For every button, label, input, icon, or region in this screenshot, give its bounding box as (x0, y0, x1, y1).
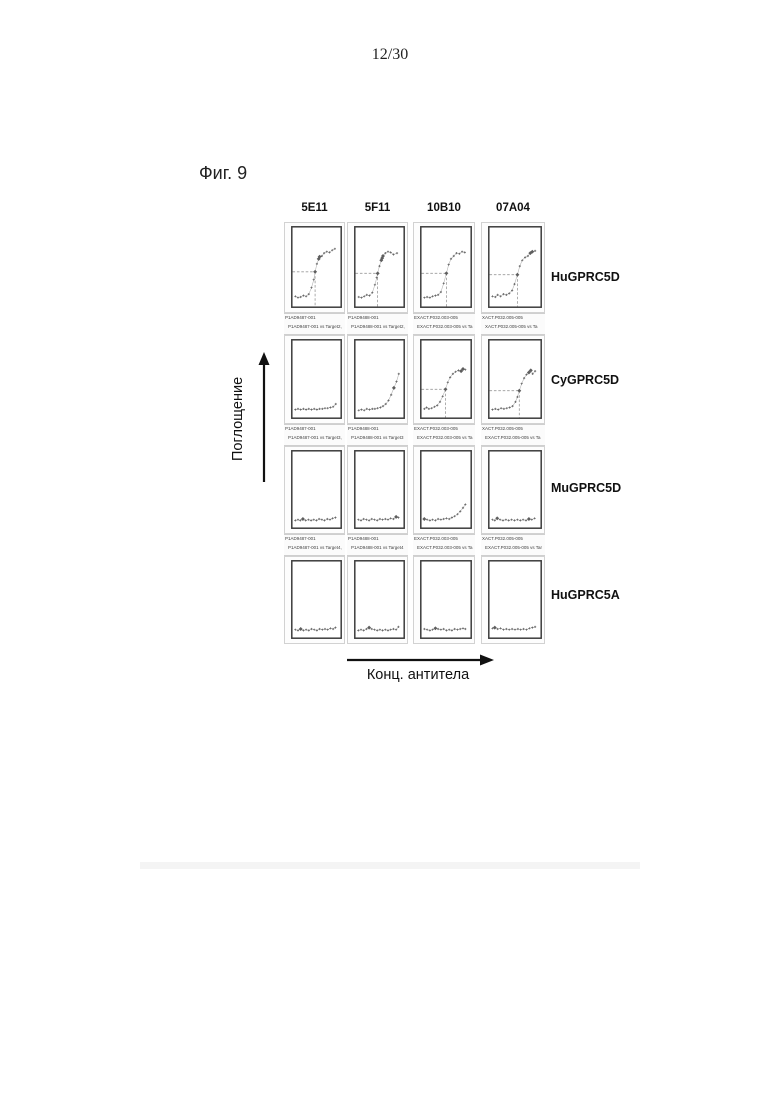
plot-caption-07A04-CyGPRC5D: XACT.P032.005-005EXACT.P032.005-005 vs T… (481, 424, 545, 446)
plot-cell-5E11-HuGPRC5A (284, 556, 345, 644)
y-axis-arrow (254, 350, 274, 490)
plot-caption-07A04-MuGPRC5D: XACT.P032.005-005EXACT.P032.005-005 vs T… (481, 534, 545, 556)
plot-caption-5F11-HuGPRC5D: P1AD9488-001P1AD9488-001 vs Target2, (347, 313, 408, 335)
plot-caption-5F11-MuGPRC5D: P1AD9488-001P1AD9488-001 vs Target4 (347, 534, 408, 556)
binding-curve-plot (420, 339, 472, 419)
caption-line-2: EXACT.P032.005-005 vs Ta (485, 435, 519, 440)
plot-caption-5E11-MuGPRC5D: P1AD9487-001P1AD9487-001 vs Target4, (284, 534, 345, 556)
caption-line-1: EXACT.P032.003-005 (414, 426, 448, 431)
binding-curve-plot (354, 450, 405, 529)
plot-grid: P1AD9487-001P1AD9487-001 vs Target2,P1AD… (0, 0, 780, 1103)
caption-line-1: P1AD9488-001 (348, 426, 382, 431)
plot-cell-5E11-MuGPRC5D (284, 446, 345, 534)
plot-caption-5E11-CyGPRC5D: P1AD9487-001P1AD9487-001 vs Target3, (284, 424, 345, 446)
caption-line-1: XACT.P032.005-005 (482, 426, 517, 431)
x-axis-label: Конц. антитела (342, 667, 494, 683)
caption-line-2: P1AD9487-001 vs Target4, (288, 545, 320, 550)
binding-curve-plot (488, 226, 542, 308)
caption-line-2: XACT.P032.005-005 vs Ta (485, 324, 519, 329)
plot-cell-07A04-HuGPRC5D (481, 222, 545, 313)
binding-curve-plot (291, 560, 342, 639)
binding-curve-plot (488, 450, 542, 529)
binding-curve-plot (420, 226, 472, 308)
caption-line-2: P1AD9488-001 vs Target4 (351, 545, 383, 550)
binding-curve-plot (354, 339, 405, 419)
plot-cell-07A04-MuGPRC5D (481, 446, 545, 534)
row-label-cygprc5d: CyGPRC5D (551, 373, 619, 387)
plot-caption-10B10-CyGPRC5D: EXACT.P032.003-005EXACT.P032.003-005 vs … (413, 424, 475, 446)
caption-line-2: P1AD9488-001 vs Target2, (351, 324, 383, 329)
caption-line-1: EXACT.P032.003-005 (414, 536, 448, 541)
caption-line-2: EXACT.P032.005-005 vs Tar (485, 545, 519, 550)
plot-cell-10B10-HuGPRC5A (413, 556, 475, 644)
caption-line-2: EXACT.P032.003-005 vs Ta (417, 435, 449, 440)
caption-line-1: P1AD9487-001 (285, 536, 319, 541)
binding-curve-plot (354, 226, 405, 308)
patent-figure-page: 12/30 Фиг. 9 5E11 5F11 10B10 07A04 P1AD9… (0, 0, 780, 1103)
plot-cell-07A04-CyGPRC5D (481, 335, 545, 424)
binding-curve-plot (420, 450, 472, 529)
plot-caption-10B10-HuGPRC5D: EXACT.P032.003-005EXACT.P032.003-005 vs … (413, 313, 475, 335)
plot-cell-07A04-HuGPRC5A (481, 556, 545, 644)
caption-line-1: XACT.P032.005-005 (482, 315, 517, 320)
caption-line-1: XACT.P032.005-005 (482, 536, 517, 541)
caption-line-1: P1AD9488-001 (348, 315, 382, 320)
y-axis-label: Поглощение (230, 352, 256, 486)
plot-cell-5F11-MuGPRC5D (347, 446, 408, 534)
caption-line-2: EXACT.P032.003-005 vs Ta (417, 324, 449, 329)
plot-cell-5F11-HuGPRC5A (347, 556, 408, 644)
plot-cell-5F11-CyGPRC5D (347, 335, 408, 424)
plot-caption-5E11-HuGPRC5D: P1AD9487-001P1AD9487-001 vs Target2, (284, 313, 345, 335)
scan-artifact-line (140, 862, 640, 869)
caption-line-1: P1AD9487-001 (285, 315, 319, 320)
caption-line-2: EXACT.P032.003-005 vs Ta (417, 545, 449, 550)
binding-curve-plot (420, 560, 472, 639)
binding-curve-plot (488, 560, 542, 639)
plot-caption-10B10-MuGPRC5D: EXACT.P032.003-005EXACT.P032.003-005 vs … (413, 534, 475, 556)
plot-cell-10B10-MuGPRC5D (413, 446, 475, 534)
caption-line-1: EXACT.P032.003-005 (414, 315, 448, 320)
plot-cell-5F11-HuGPRC5D (347, 222, 408, 313)
binding-curve-plot (291, 226, 342, 308)
row-label-hugprc5a: HuGPRC5A (551, 588, 620, 602)
caption-line-2: P1AD9487-001 vs Target3, (288, 435, 320, 440)
caption-line-1: P1AD9487-001 (285, 426, 319, 431)
caption-line-1: P1AD9488-001 (348, 536, 382, 541)
binding-curve-plot (291, 450, 342, 529)
binding-curve-plot (354, 560, 405, 639)
binding-curve-plot (488, 339, 542, 419)
binding-curve-plot (291, 339, 342, 419)
row-label-mugprc5d: MuGPRC5D (551, 481, 621, 495)
plot-cell-10B10-HuGPRC5D (413, 222, 475, 313)
plot-caption-07A04-HuGPRC5D: XACT.P032.005-005XACT.P032.005-005 vs Ta (481, 313, 545, 335)
plot-cell-5E11-CyGPRC5D (284, 335, 345, 424)
caption-line-2: P1AD9488-001 vs Target3 (351, 435, 383, 440)
plot-cell-10B10-CyGPRC5D (413, 335, 475, 424)
caption-line-2: P1AD9487-001 vs Target2, (288, 324, 320, 329)
row-label-hugprc5d: HuGPRC5D (551, 270, 620, 284)
plot-caption-5F11-CyGPRC5D: P1AD9488-001P1AD9488-001 vs Target3 (347, 424, 408, 446)
plot-cell-5E11-HuGPRC5D (284, 222, 345, 313)
